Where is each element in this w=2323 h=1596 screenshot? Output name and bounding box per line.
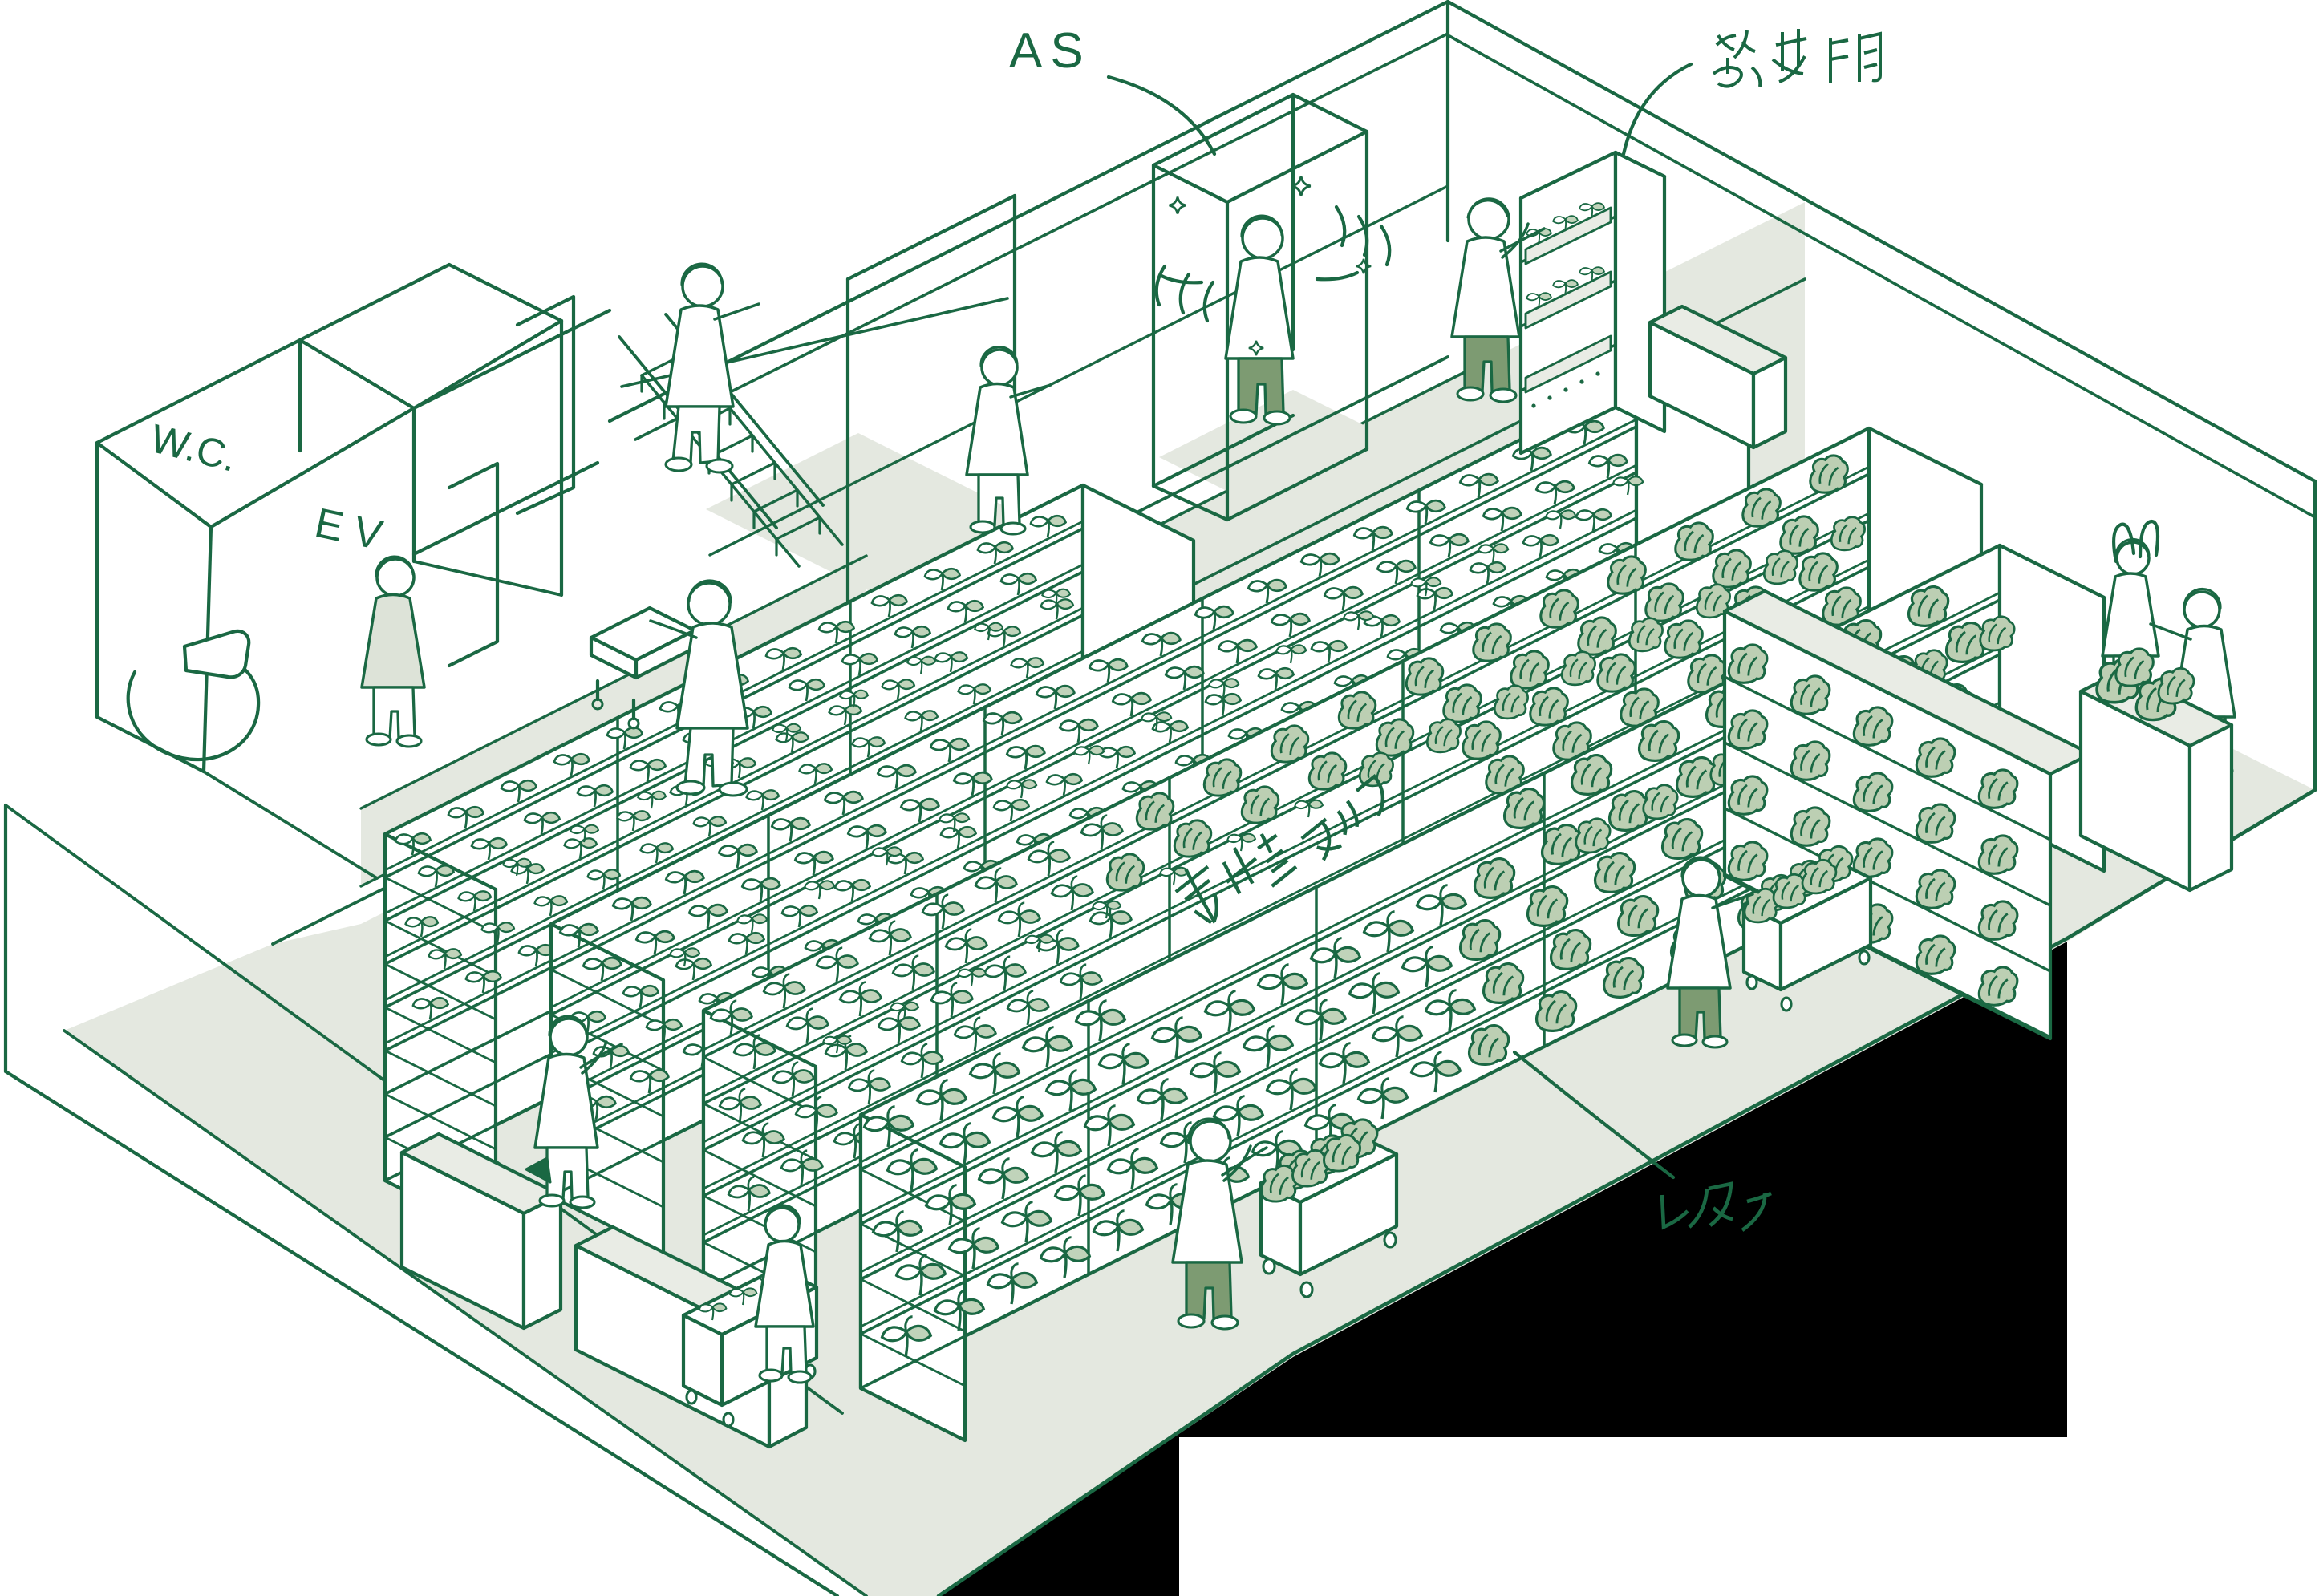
svg-text:AS: AS xyxy=(1009,23,1092,79)
